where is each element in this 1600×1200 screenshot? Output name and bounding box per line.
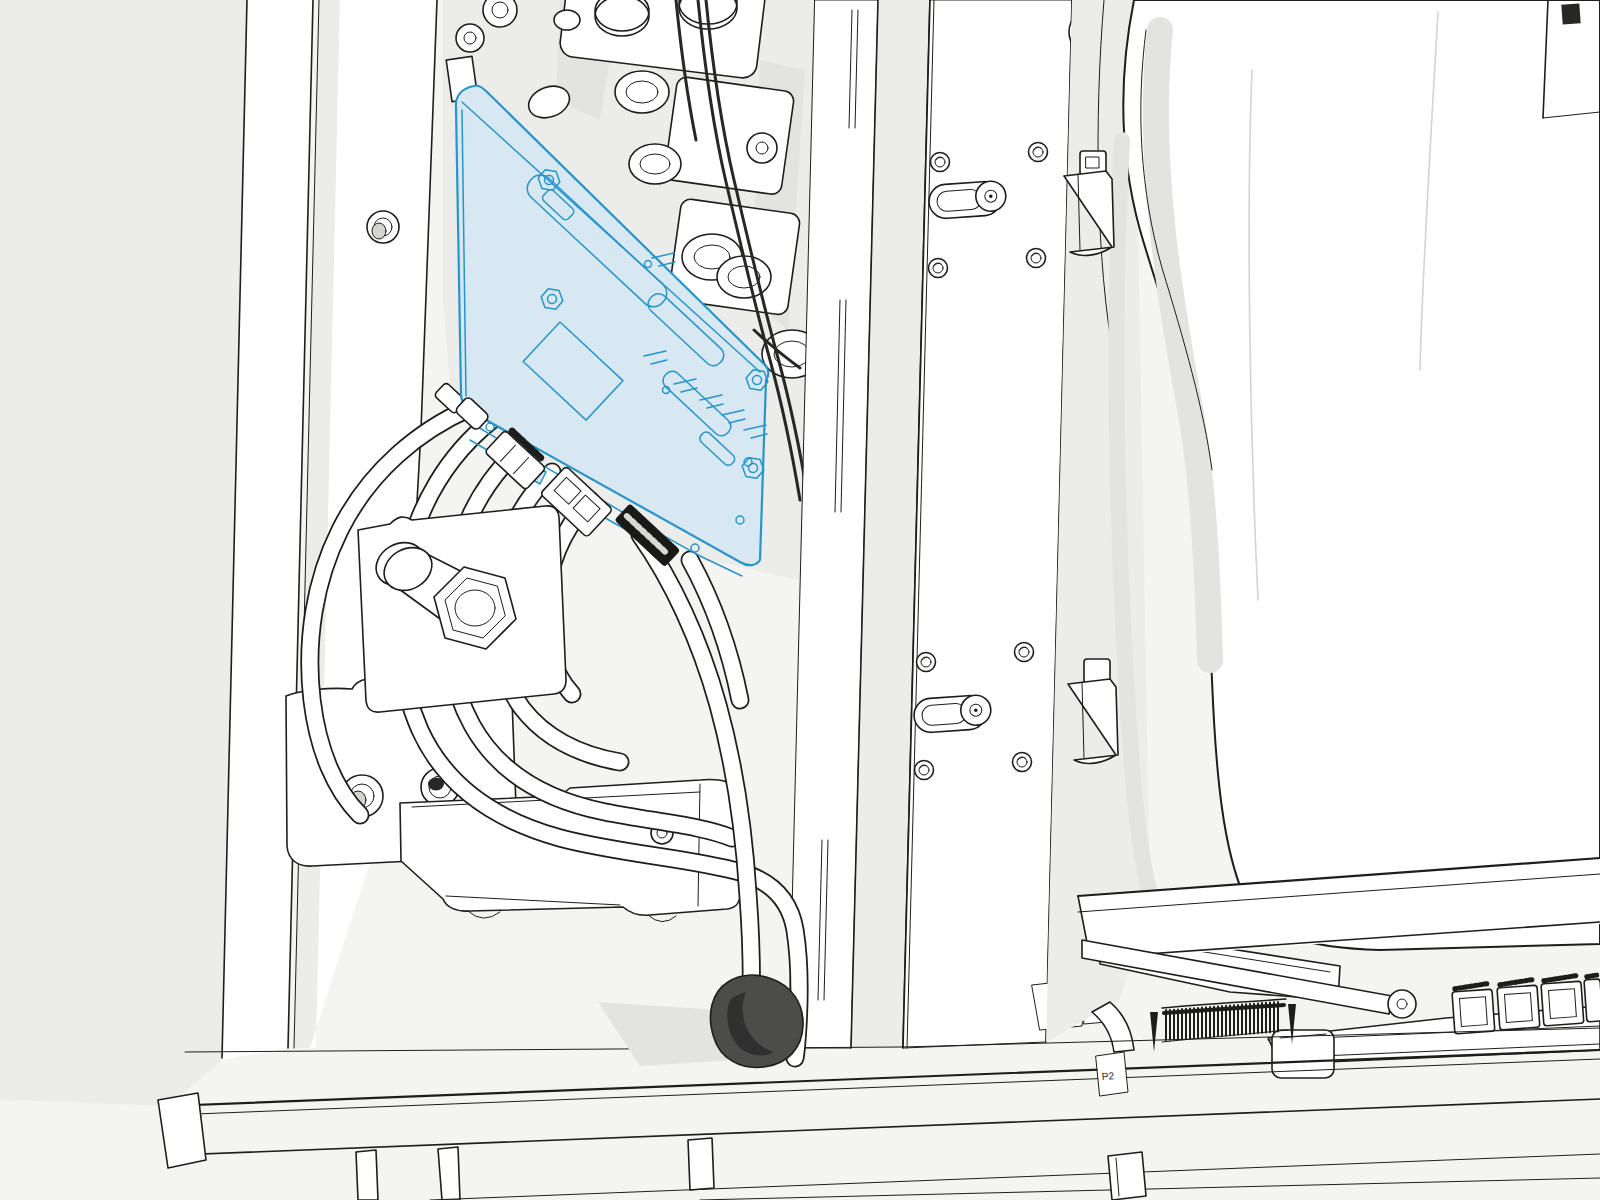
strut-pivot xyxy=(1388,990,1416,1018)
screw-valve-block xyxy=(747,133,777,163)
valve-block-mid xyxy=(664,76,795,195)
rail-tab xyxy=(1108,1152,1146,1200)
screw-upper-4 xyxy=(1027,249,1046,268)
screw-upper-1 xyxy=(931,153,950,172)
screw-lower-3 xyxy=(915,761,934,780)
corner-clip xyxy=(1561,3,1580,24)
illustration-canvas: P2 xyxy=(0,0,1600,1200)
connector-label: P2 xyxy=(1101,1070,1114,1082)
screw-lower-1 xyxy=(917,653,936,672)
screw-upper-2 xyxy=(1029,143,1048,162)
service-illustration: P2 xyxy=(0,0,1600,1200)
screw-upper-3 xyxy=(929,259,948,278)
panel-grommet xyxy=(367,211,399,243)
mounting-plate xyxy=(358,506,566,712)
screw-lower-2 xyxy=(1015,643,1034,662)
screw-lower-4 xyxy=(1013,753,1032,772)
